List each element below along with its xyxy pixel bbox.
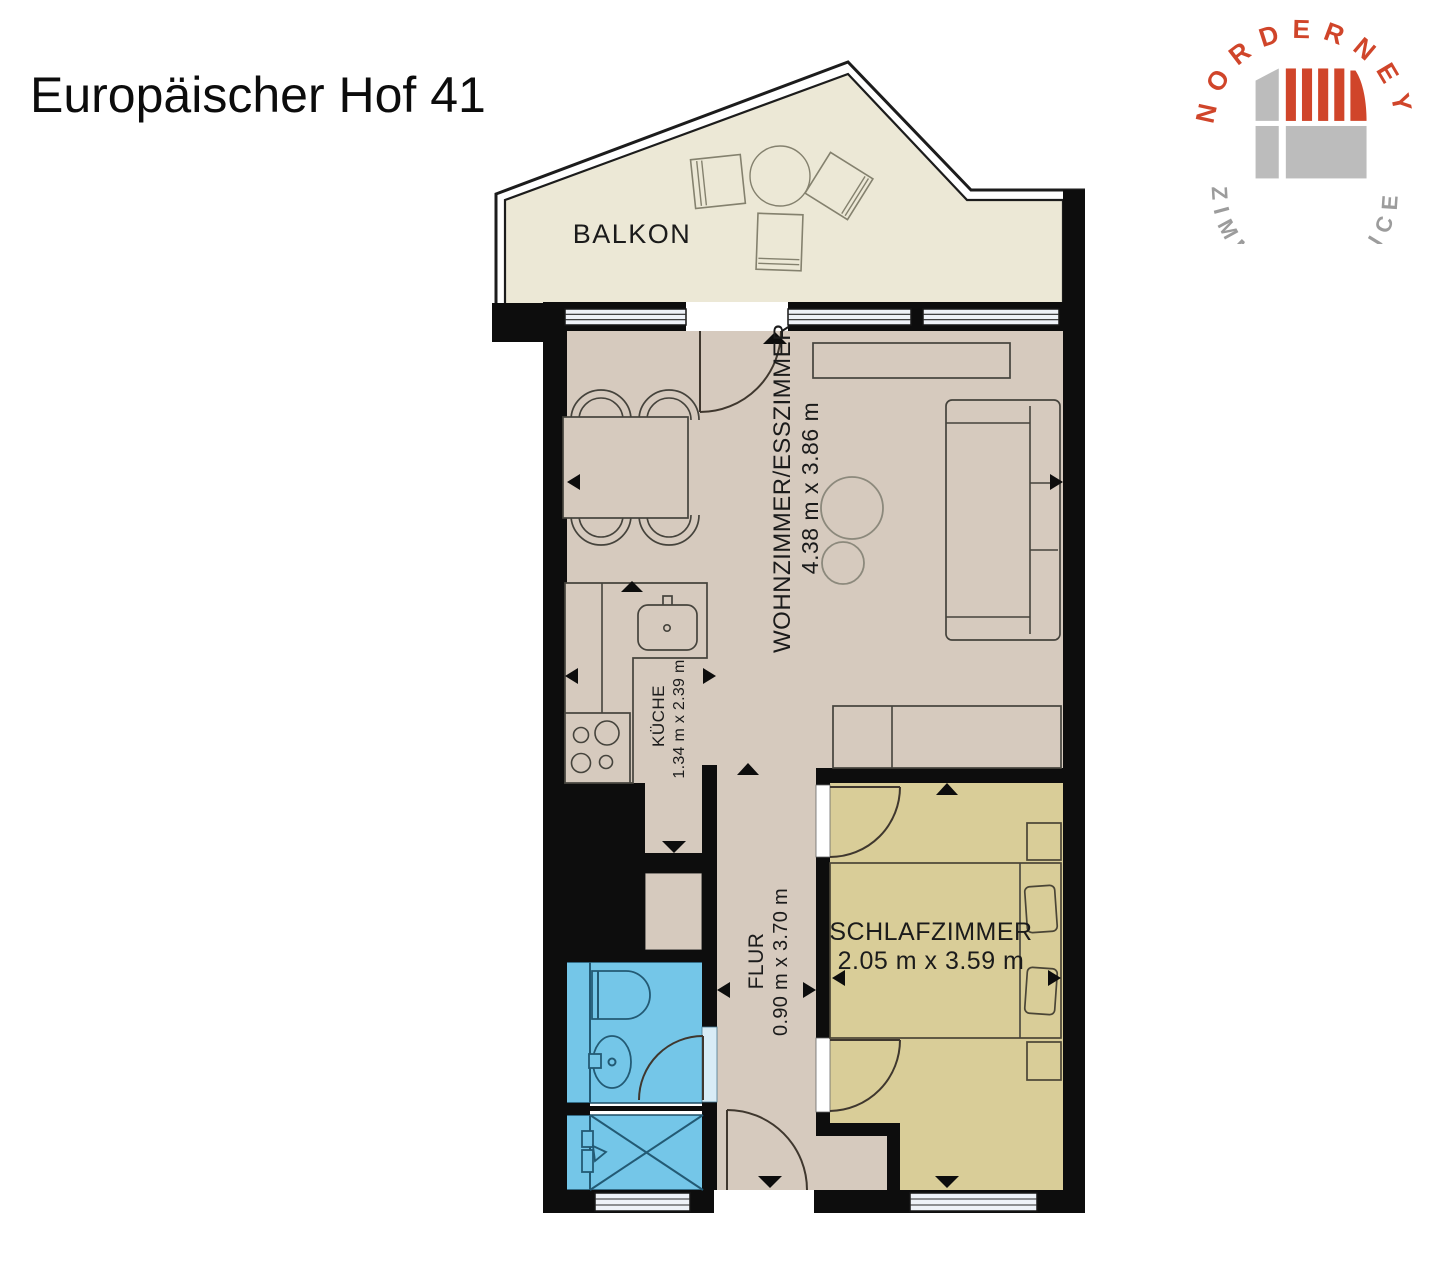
label-kueche: KÜCHE [649, 685, 668, 747]
wall-hall-left-lower [702, 1102, 717, 1190]
nightstand-bottom [1027, 1042, 1061, 1080]
wall-shaft-bar [645, 950, 702, 962]
nightstand-top [1027, 823, 1061, 860]
wardrobe [833, 706, 1061, 768]
entry-door-opening [714, 1190, 814, 1213]
label-schlafzimmer: SCHLAFZIMMER [829, 918, 1032, 946]
wall-bedroom-top [816, 768, 1063, 783]
shower-fixture [582, 1131, 593, 1147]
wall-bedroom-bottom-left-v [887, 1136, 900, 1190]
floor-plan-svg: BALKON WOHNZIMMER/ESSZIMMER 4.38 m x 3.8… [0, 0, 1440, 1280]
wall-right [1063, 190, 1085, 1213]
window-top-3 [923, 309, 1059, 325]
bathroom-door-opening [702, 1027, 717, 1102]
window-top-1 [565, 309, 686, 325]
label-wohnzimmer-dims: 4.38 m x 3.86 m [797, 402, 823, 574]
bedroom-door-opening-bottom [816, 1038, 830, 1112]
floor-plan: BALKON WOHNZIMMER/ESSZIMMER 4.38 m x 3.8… [0, 0, 1440, 1280]
balcony-chair-left [691, 155, 746, 209]
floorplan-page: { "title": "Europäischer Hof 41", "logo"… [0, 0, 1440, 1280]
wall-hall-left-upper [702, 765, 717, 1027]
balcony-chair-bottom [756, 213, 803, 271]
sideboard [813, 343, 1010, 378]
label-kueche-dims: 1.34 m x 2.39 m [671, 659, 688, 778]
label-schlafzimmer-dims: 2.05 m x 3.59 m [838, 947, 1025, 975]
label-wohnzimmer: WOHNZIMMER/ESSZIMMER [769, 323, 796, 653]
window-bottom-bedroom [910, 1193, 1037, 1211]
wall-bath-divider [563, 1103, 590, 1115]
label-balkon: BALKON [573, 219, 692, 249]
wall-bedroom-bottom-left-h [816, 1123, 900, 1136]
label-flur-dims: 0.90 m x 3.70 m [770, 888, 792, 1036]
stove [565, 713, 630, 783]
wall-niche-bar [645, 853, 702, 873]
window-top-2 [788, 309, 911, 325]
label-flur: FLUR [745, 933, 768, 990]
dining-table [563, 417, 688, 518]
window-bottom-shower [595, 1193, 690, 1211]
sofa [946, 400, 1060, 640]
bathtub [592, 971, 650, 1019]
wall-kitchen-block [565, 783, 645, 962]
wall-bedroom-left-b [816, 857, 830, 1038]
wall-bath-divider-line [590, 1106, 705, 1111]
bedroom-door-opening-top [816, 785, 830, 857]
shaft [645, 873, 702, 950]
